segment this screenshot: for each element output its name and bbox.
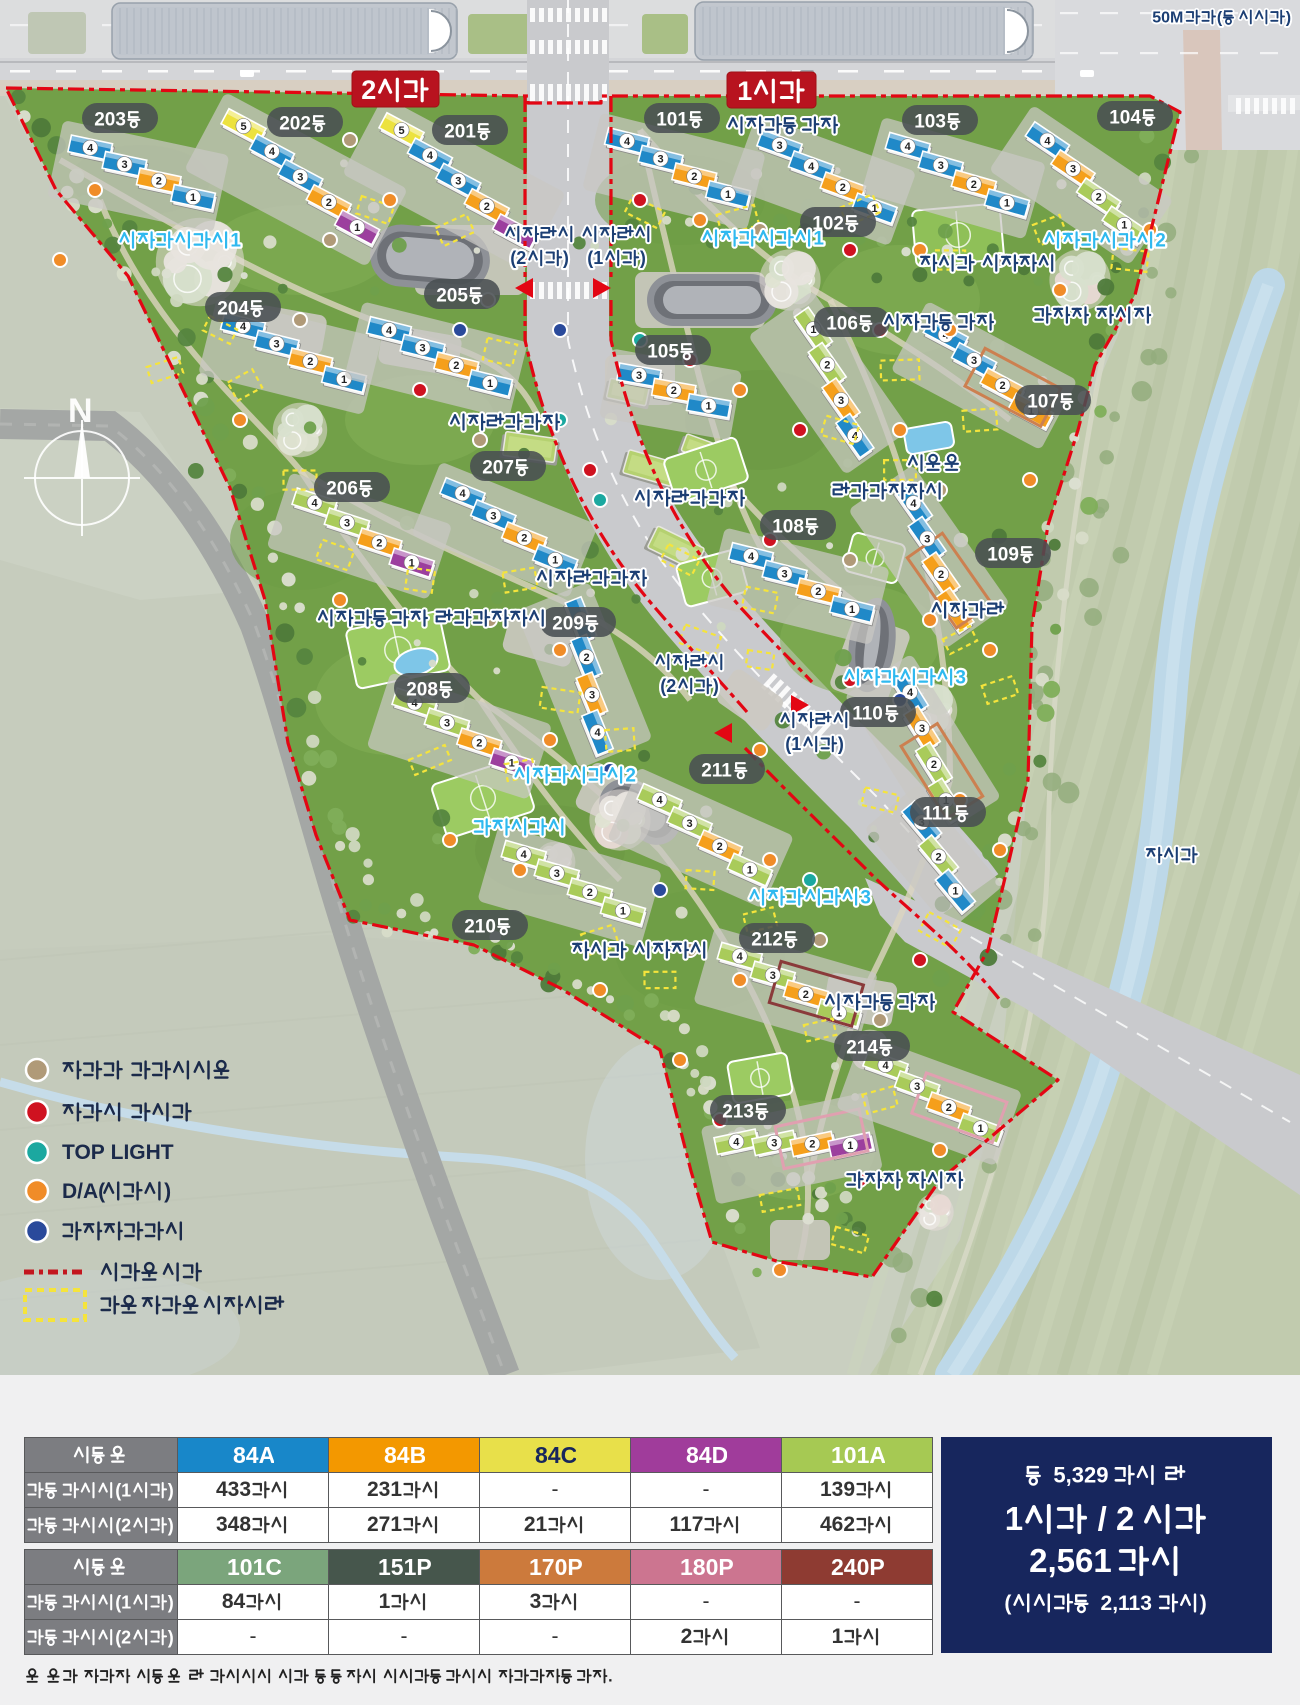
svg-text:3: 3 (121, 159, 127, 171)
svg-text:3: 3 (971, 355, 977, 367)
svg-text:204: 204 (217, 299, 249, 320)
svg-text:2: 2 (1000, 380, 1006, 392)
svg-text:201: 201 (444, 122, 476, 143)
svg-text:4: 4 (240, 321, 247, 333)
svg-text:3: 3 (344, 517, 350, 529)
svg-text:107: 107 (1027, 392, 1059, 413)
svg-text:(1: (1 (587, 248, 603, 268)
svg-text:1: 1 (190, 192, 196, 204)
svg-text:(2: (2 (510, 248, 526, 268)
svg-text:3: 3 (770, 970, 776, 982)
svg-text:): ) (1200, 1592, 1207, 1615)
svg-text:2,561: 2,561 (1029, 1542, 1112, 1579)
svg-text:103: 103 (914, 112, 946, 133)
svg-text:2: 2 (691, 171, 697, 183)
svg-text:206: 206 (326, 479, 358, 500)
svg-text:3: 3 (297, 172, 303, 184)
svg-text:): ) (713, 676, 719, 696)
svg-text:(2: (2 (115, 1627, 131, 1647)
svg-text:2: 2 (376, 537, 382, 549)
svg-text:202: 202 (279, 114, 311, 135)
svg-text:(1: (1 (115, 1480, 131, 1500)
svg-text:): ) (168, 1627, 174, 1647)
svg-text:/ 2: / 2 (1089, 1500, 1135, 1537)
svg-text:(2: (2 (660, 676, 676, 696)
svg-text:4: 4 (905, 141, 912, 153)
svg-text:4: 4 (521, 849, 528, 861)
svg-text:1: 1 (952, 885, 958, 897)
svg-text:3: 3 (274, 339, 280, 351)
svg-text:3: 3 (776, 140, 782, 152)
svg-text:4: 4 (748, 551, 755, 563)
svg-text:4: 4 (733, 1137, 740, 1149)
svg-text:3: 3 (554, 868, 560, 880)
svg-text:5,329: 5,329 (1047, 1463, 1108, 1488)
svg-text:109: 109 (987, 545, 1019, 566)
svg-text:170P: 170P (529, 1554, 583, 1580)
svg-text:151P: 151P (378, 1554, 432, 1580)
svg-text:4: 4 (87, 143, 94, 155)
svg-text:84D: 84D (686, 1442, 727, 1468)
svg-text:2: 2 (671, 385, 677, 397)
svg-text:4: 4 (1044, 135, 1051, 147)
svg-text:106: 106 (826, 314, 858, 335)
svg-text:2: 2 (946, 1102, 952, 1114)
svg-text:50M: 50M (1152, 9, 1188, 26)
svg-text:(2: (2 (115, 1515, 131, 1535)
svg-text:): ) (168, 1515, 174, 1535)
svg-text:4: 4 (656, 795, 663, 807)
svg-text:.: . (608, 1668, 612, 1685)
svg-text:3: 3 (914, 1081, 920, 1093)
svg-text:3: 3 (636, 370, 642, 382)
svg-text:105: 105 (647, 342, 679, 363)
svg-text:2: 2 (476, 737, 482, 749)
svg-text:3: 3 (924, 533, 930, 545)
svg-text:2: 2 (938, 569, 944, 581)
svg-text:1: 1 (354, 222, 360, 234)
svg-text:4: 4 (808, 161, 815, 173)
svg-text:TOP LIGHT: TOP LIGHT (62, 1141, 174, 1164)
svg-text:3: 3 (919, 723, 925, 735)
svg-text:213: 213 (722, 1102, 754, 1123)
svg-text:4: 4 (386, 325, 393, 337)
svg-text:4: 4 (737, 951, 744, 963)
svg-text:3: 3 (838, 395, 844, 407)
svg-text:4: 4 (907, 687, 914, 699)
svg-text:1: 1 (1005, 1500, 1023, 1537)
svg-text:5: 5 (240, 121, 246, 133)
svg-text:4: 4 (910, 498, 917, 510)
svg-text:1: 1 (230, 231, 241, 252)
svg-text:1: 1 (487, 378, 493, 390)
svg-text:5: 5 (398, 125, 404, 137)
svg-text:2: 2 (824, 359, 830, 371)
svg-text:2: 2 (583, 652, 589, 664)
svg-text:180P: 180P (680, 1554, 734, 1580)
svg-text:(: ( (1217, 9, 1223, 26)
svg-text:1: 1 (813, 229, 824, 250)
svg-text:2: 2 (326, 197, 332, 209)
svg-text:3: 3 (1070, 164, 1076, 176)
svg-text:104: 104 (1109, 108, 1141, 129)
svg-text:240P: 240P (831, 1554, 885, 1580)
svg-text:4: 4 (594, 727, 601, 739)
svg-text:4: 4 (269, 146, 276, 158)
svg-text:3: 3 (687, 818, 693, 830)
svg-text:): ) (164, 1180, 171, 1203)
svg-text:2: 2 (1155, 231, 1166, 252)
svg-text:1: 1 (747, 864, 753, 876)
svg-text:2: 2 (484, 201, 490, 213)
svg-text:3: 3 (771, 1138, 777, 1150)
svg-text:3: 3 (455, 176, 461, 188)
svg-text:1: 1 (552, 555, 558, 567)
svg-text:211: 211 (701, 761, 732, 782)
svg-text:4: 4 (624, 136, 631, 148)
svg-text:210: 210 (464, 917, 496, 938)
svg-text:84A: 84A (233, 1442, 274, 1468)
svg-text:2: 2 (840, 182, 846, 194)
svg-text:108: 108 (772, 517, 804, 538)
svg-text:110: 110 (852, 704, 883, 725)
svg-text:(1: (1 (785, 734, 801, 754)
svg-text:N: N (68, 392, 93, 430)
svg-text:D/A(: D/A( (62, 1180, 105, 1203)
svg-text:): ) (563, 248, 569, 268)
svg-text:1: 1 (849, 604, 855, 616)
svg-text:2: 2 (521, 533, 527, 545)
svg-text:(1: (1 (115, 1592, 131, 1612)
svg-text:84C: 84C (535, 1442, 576, 1468)
svg-text:3: 3 (782, 569, 788, 581)
svg-text:2: 2 (936, 851, 942, 863)
svg-text:4: 4 (427, 150, 434, 162)
svg-text:203: 203 (94, 110, 126, 131)
svg-text:209: 209 (552, 614, 584, 635)
svg-text:1: 1 (737, 76, 752, 106)
svg-text:1: 1 (620, 906, 626, 918)
svg-text:3: 3 (589, 690, 595, 702)
svg-text:3: 3 (658, 154, 664, 166)
svg-text:3: 3 (860, 888, 871, 909)
svg-text:101A: 101A (831, 1442, 885, 1468)
svg-text:2: 2 (307, 356, 313, 368)
svg-text:2: 2 (453, 360, 459, 372)
svg-text:4: 4 (882, 1060, 889, 1072)
svg-text:101: 101 (656, 110, 688, 131)
svg-text:1: 1 (725, 189, 731, 201)
svg-text:208: 208 (406, 680, 438, 701)
svg-text:2: 2 (803, 989, 809, 1001)
svg-text:3: 3 (444, 717, 450, 729)
svg-text:2: 2 (971, 179, 977, 191)
svg-text:2: 2 (625, 766, 636, 787)
svg-text:101C: 101C (227, 1554, 281, 1580)
svg-text:2: 2 (931, 759, 937, 771)
svg-text:2: 2 (815, 586, 821, 598)
svg-text:207: 207 (482, 458, 514, 479)
svg-text:(: ( (1004, 1592, 1011, 1615)
svg-text:): ) (168, 1480, 174, 1500)
svg-text:3: 3 (955, 668, 966, 689)
svg-text:3: 3 (490, 510, 496, 522)
svg-text:2: 2 (1096, 192, 1102, 204)
svg-text:3: 3 (938, 160, 944, 172)
svg-text:1: 1 (1121, 220, 1127, 232)
svg-text:1: 1 (706, 401, 712, 413)
svg-text:): ) (1286, 9, 1291, 26)
svg-text:4: 4 (312, 497, 319, 509)
svg-text:212: 212 (751, 930, 783, 951)
svg-text:2: 2 (809, 1139, 815, 1151)
svg-text:): ) (168, 1592, 174, 1612)
svg-text:2: 2 (717, 841, 723, 853)
svg-text:205: 205 (436, 286, 468, 307)
svg-text:214: 214 (846, 1038, 878, 1059)
svg-text:111: 111 (922, 804, 952, 825)
svg-text:84B: 84B (384, 1442, 425, 1468)
svg-text:): ) (838, 734, 844, 754)
svg-text:): ) (640, 248, 646, 268)
svg-text:3: 3 (420, 343, 426, 355)
svg-text:4: 4 (459, 488, 466, 500)
svg-text:2: 2 (587, 887, 593, 899)
svg-text:2,113: 2,113 (1095, 1592, 1152, 1615)
svg-text:2: 2 (156, 176, 162, 188)
svg-text:1: 1 (977, 1123, 983, 1135)
svg-text:2: 2 (361, 75, 376, 105)
svg-text:1: 1 (1004, 198, 1010, 210)
svg-text:1: 1 (847, 1140, 853, 1152)
